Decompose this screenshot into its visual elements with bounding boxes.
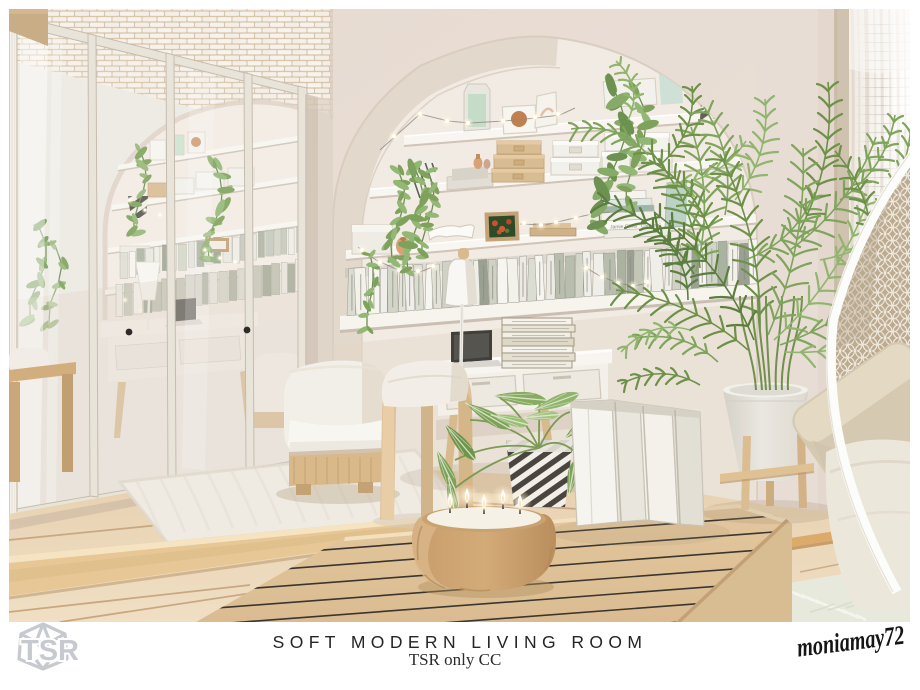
svg-text:SOFT MODERN LIVING ROOM: SOFT MODERN LIVING ROOM [273,632,648,652]
svg-text:TSR only CC: TSR only CC [409,650,502,669]
svg-text:TSR: TSR [21,635,79,667]
